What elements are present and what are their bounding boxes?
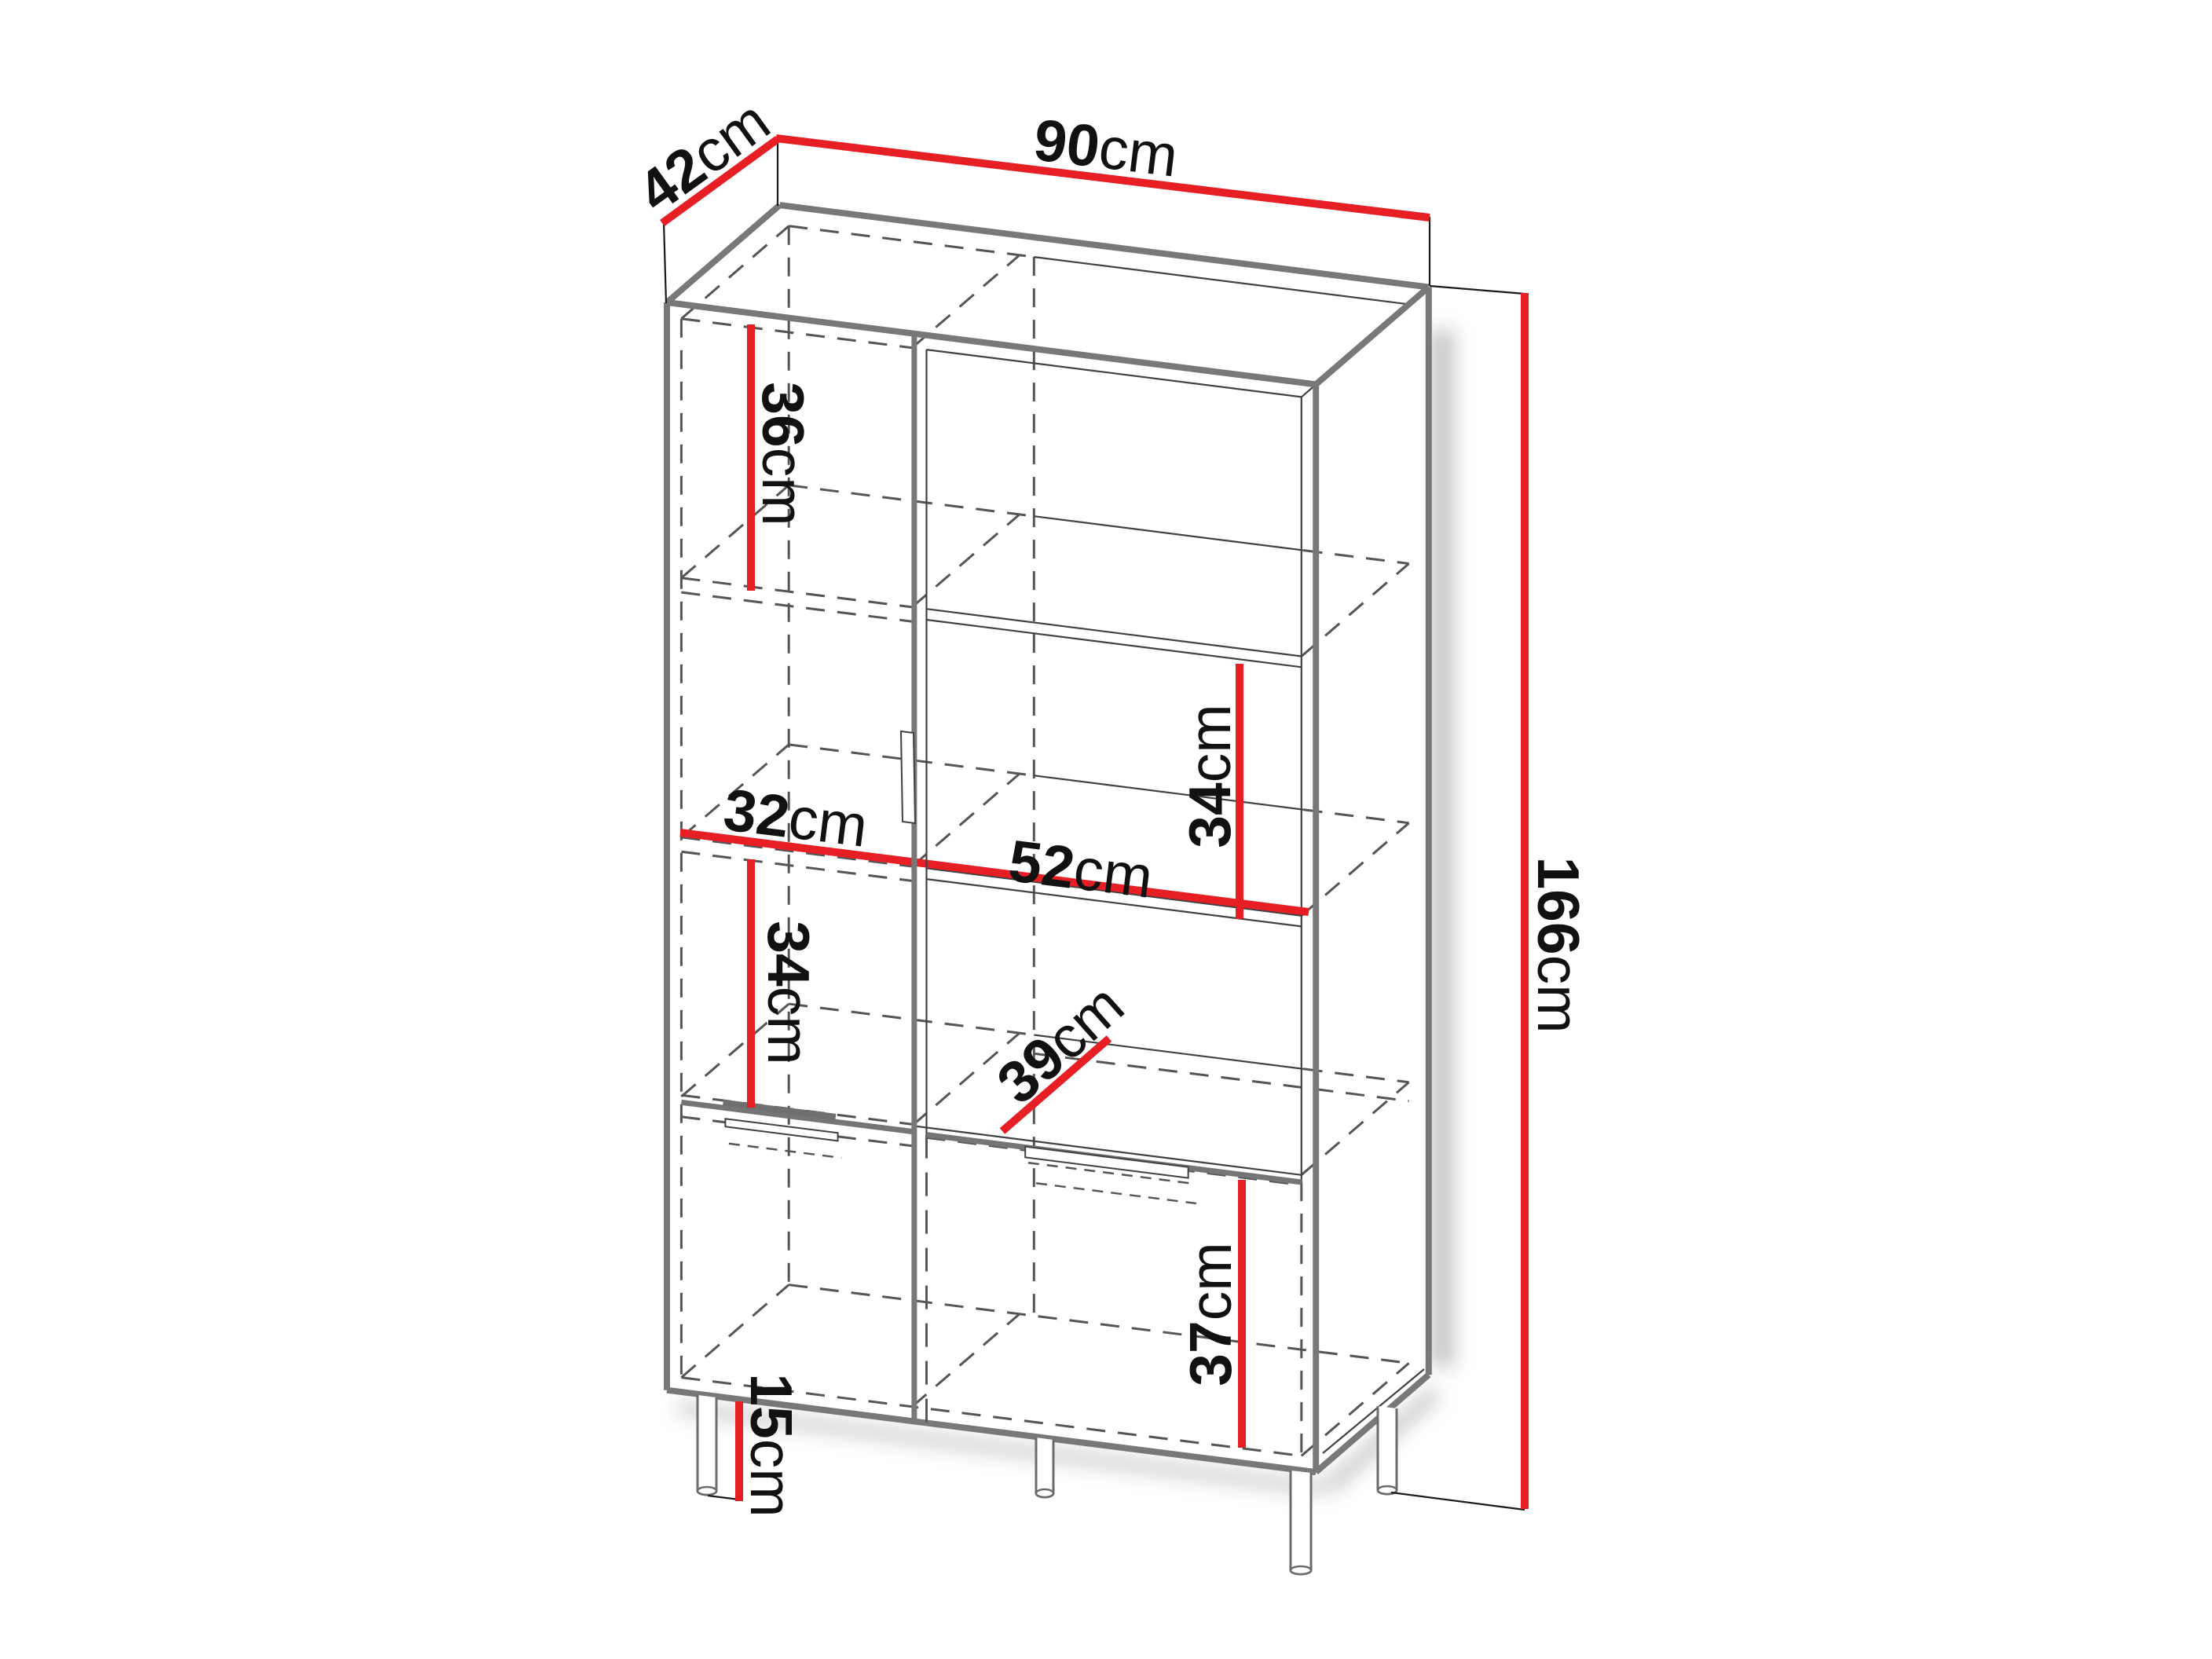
svg-text:34cm: 34cm (756, 921, 822, 1064)
svg-text:36cm: 36cm (750, 382, 816, 526)
svg-text:42cm: 42cm (626, 87, 782, 225)
svg-text:15cm: 15cm (738, 1373, 804, 1517)
svg-text:34cm: 34cm (1177, 704, 1243, 848)
svg-text:166cm: 166cm (1525, 856, 1591, 1033)
svg-text:37cm: 37cm (1177, 1242, 1243, 1386)
svg-text:90cm: 90cm (1031, 106, 1181, 189)
